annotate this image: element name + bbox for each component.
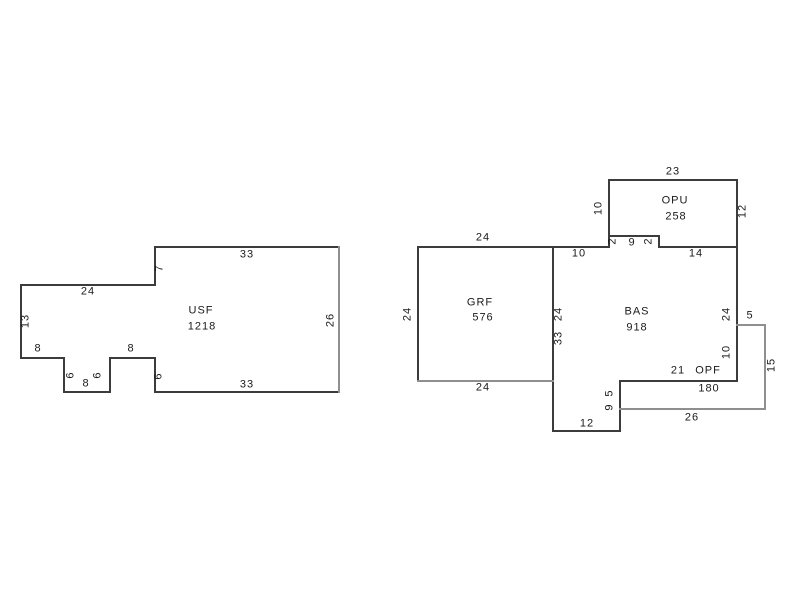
dimension-label: 24 [722,307,733,321]
dimension-label: 33 [240,380,254,391]
dimension-label: 8 [82,379,89,390]
area-value-usf: 1218 [188,322,216,333]
area-code-usf: USF [189,306,214,317]
dimension-label: 5 [746,311,753,322]
dimension-label: 23 [666,167,680,178]
dimension-label: 9 [628,238,635,249]
area-code-grf: GRF [467,298,493,309]
dimension-label: 14 [689,249,703,260]
dimension-label: 8 [127,344,134,355]
dimension-label: 33 [554,331,565,345]
dimension-label: 12 [738,204,749,218]
dimension-label: 9 [605,403,616,410]
dimension-label: 26 [685,413,699,424]
dimension-label: 10 [572,249,586,260]
area-code-opf: OPF [695,366,721,377]
sketch-lines [0,0,800,600]
dimension-label: 6 [66,371,77,378]
dimension-label: 26 [326,313,337,327]
area-code-opu: OPU [662,196,689,207]
dimension-label: 8 [34,344,41,355]
dimension-label: 24 [403,307,414,321]
dimension-label: 13 [21,314,32,328]
opf-outline [620,325,765,409]
bas-outline [553,236,737,431]
usf-outline [21,247,339,392]
area-value-bas: 918 [626,323,647,334]
dimension-label: 2 [644,237,655,244]
dimension-label: 24 [476,233,490,244]
dimension-label: 6 [93,371,104,378]
dimension-label: 5 [605,389,616,396]
dimension-label: 6 [154,372,165,379]
floor-plan-sketch: USF1218GRF576BAS918OPU258OPF180337241388… [0,0,800,600]
dimension-label: 33 [240,250,254,261]
dimension-label: 15 [767,358,778,372]
dimension-label: 10 [594,201,605,215]
dimension-label: 21 [671,366,685,377]
dimension-label: 24 [81,287,95,298]
area-code-bas: BAS [624,307,649,318]
dimension-label: 12 [580,419,594,430]
dimension-label: 7 [155,264,166,271]
dimension-label: 24 [476,383,490,394]
area-value-grf: 576 [472,313,493,324]
dimension-label: 10 [722,345,733,359]
dimension-label: 24 [554,307,565,321]
area-value-opf: 180 [698,384,719,395]
dimension-label: 2 [608,237,619,244]
area-value-opu: 258 [665,212,686,223]
